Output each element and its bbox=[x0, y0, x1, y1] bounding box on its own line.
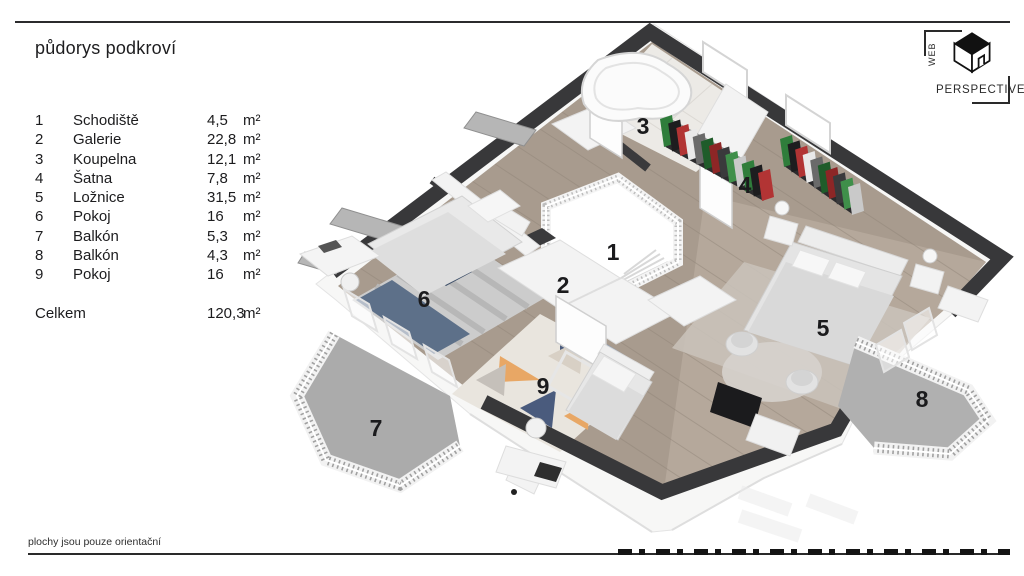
footnote: plochy jsou pouze orientační bbox=[28, 536, 161, 548]
plan-room-label: 3 bbox=[637, 113, 650, 139]
logo-word-perspective: PERSPECTIVE bbox=[936, 84, 1024, 96]
plan-room-label: 9 bbox=[537, 373, 550, 399]
plan-room-label: 6 bbox=[418, 286, 431, 312]
house-icon bbox=[950, 30, 994, 74]
brand-logo: WEB PERSPECTIVE bbox=[924, 28, 1012, 108]
plan-room-label: 1 bbox=[607, 239, 620, 265]
page: { "title": "půdorys podkroví", "legend":… bbox=[0, 0, 1024, 576]
faint-watermark bbox=[740, 492, 856, 536]
plan-room-label: 5 bbox=[817, 315, 830, 341]
plan-room-label: 4 bbox=[739, 172, 752, 198]
logo-word-web: WEB bbox=[927, 42, 937, 66]
plan-room-label: 7 bbox=[370, 415, 383, 441]
plan-room-label: 8 bbox=[916, 386, 929, 412]
plan-room-label: 2 bbox=[557, 272, 570, 298]
cutoff-watermark-text bbox=[618, 549, 1010, 555]
floor-plan: 123456789 bbox=[0, 0, 1024, 576]
balcony-8 bbox=[838, 342, 988, 454]
